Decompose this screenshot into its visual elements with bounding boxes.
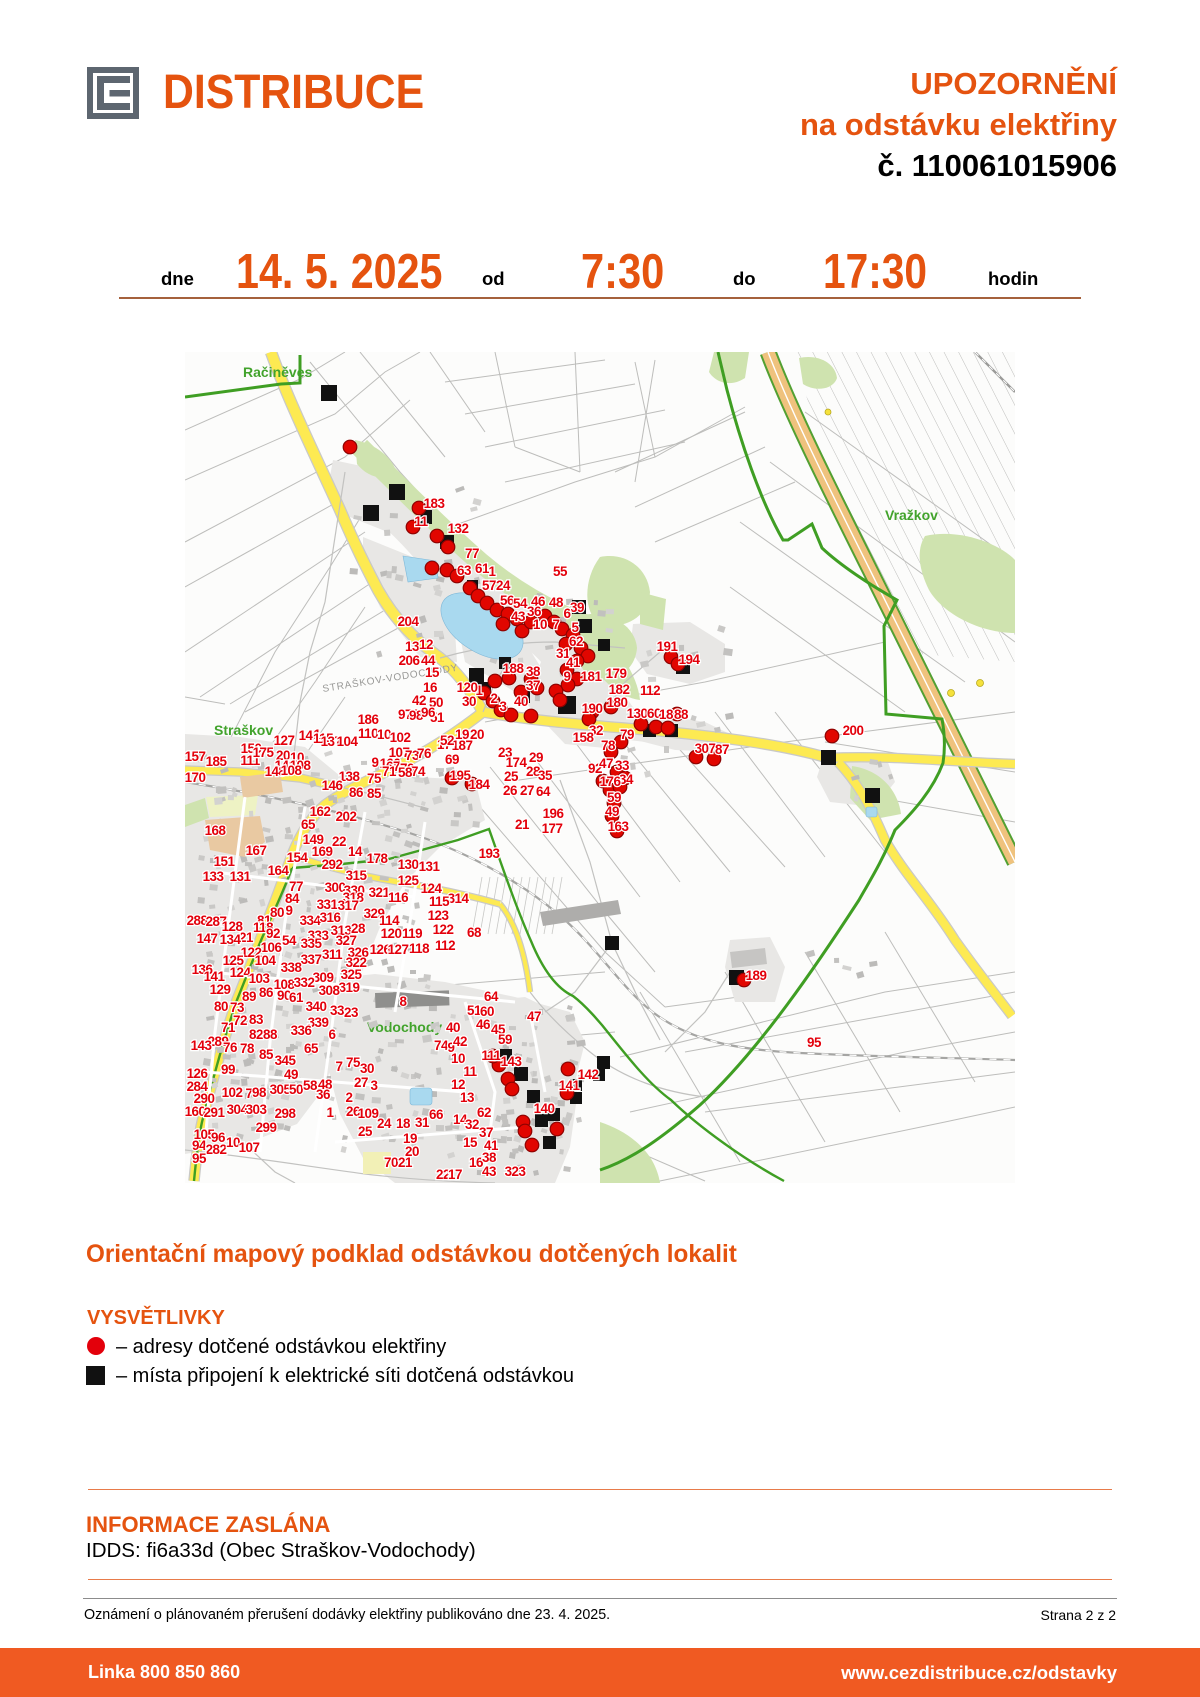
svg-text:337: 337 [301,952,322,967]
svg-text:59: 59 [498,1032,512,1047]
svg-text:13: 13 [405,639,419,654]
svg-text:40: 40 [514,694,528,709]
svg-text:Račiněves: Račiněves [243,364,312,380]
svg-text:303: 303 [246,1102,267,1117]
svg-text:89: 89 [242,989,256,1004]
svg-text:170: 170 [185,770,205,785]
svg-text:75: 75 [367,771,382,786]
svg-text:98: 98 [252,1085,267,1100]
svg-text:62: 62 [477,1105,491,1120]
svg-text:30: 30 [360,1061,374,1076]
svg-text:119: 119 [402,926,422,941]
svg-text:19: 19 [455,727,469,742]
svg-text:2: 2 [491,691,498,706]
svg-text:3: 3 [500,699,507,714]
svg-text:7: 7 [336,1059,343,1074]
svg-text:141: 141 [559,1078,581,1093]
svg-text:11: 11 [463,1064,477,1079]
svg-text:200: 200 [843,723,864,738]
svg-text:158: 158 [573,730,595,745]
svg-text:332: 332 [294,975,315,990]
svg-text:57: 57 [482,578,496,593]
svg-text:194: 194 [679,652,701,667]
svg-text:10: 10 [533,617,547,632]
svg-text:193: 193 [479,846,500,861]
svg-text:77: 77 [465,546,479,561]
svg-text:340: 340 [306,999,327,1014]
svg-text:116: 116 [388,890,408,905]
svg-text:336: 336 [291,1023,312,1038]
svg-text:143: 143 [191,1038,212,1053]
svg-text:181: 181 [581,669,603,684]
svg-text:118: 118 [409,941,430,956]
svg-text:95: 95 [807,1035,822,1050]
svg-text:21: 21 [515,817,530,832]
svg-text:65: 65 [304,1041,319,1056]
svg-text:160: 160 [185,1104,205,1119]
svg-text:14: 14 [348,844,363,859]
svg-text:123: 123 [428,908,449,923]
svg-text:12: 12 [451,1077,465,1092]
svg-text:43: 43 [482,1164,496,1179]
svg-text:87: 87 [715,742,729,757]
svg-text:184: 184 [469,777,491,792]
svg-text:319: 319 [339,980,360,995]
svg-text:25: 25 [358,1124,373,1139]
svg-text:147: 147 [197,931,218,946]
svg-text:24: 24 [377,1116,392,1131]
svg-text:185: 185 [206,754,228,769]
svg-text:61: 61 [289,990,304,1005]
svg-text:292: 292 [322,857,343,872]
svg-text:43: 43 [511,609,525,624]
svg-text:125: 125 [398,873,420,888]
svg-text:Vražkov: Vražkov [885,507,938,523]
svg-text:47: 47 [527,1009,541,1024]
svg-text:111: 111 [481,1048,501,1063]
svg-text:78: 78 [240,1041,255,1056]
svg-text:11: 11 [414,514,428,529]
svg-text:180: 180 [607,695,628,710]
svg-text:76: 76 [223,1040,237,1055]
svg-text:142: 142 [578,1067,599,1082]
svg-text:196: 196 [543,806,564,821]
svg-text:134: 134 [220,932,242,947]
svg-text:63: 63 [457,563,471,578]
svg-text:88: 88 [263,1027,278,1042]
svg-text:49: 49 [284,1067,298,1082]
svg-text:314: 314 [448,891,470,906]
svg-text:1: 1 [327,1105,335,1120]
svg-text:179: 179 [606,666,627,681]
svg-text:13: 13 [460,1090,474,1105]
svg-text:37: 37 [526,678,540,693]
svg-text:60: 60 [480,1004,494,1019]
svg-text:85: 85 [367,786,382,801]
svg-text:33: 33 [615,758,629,773]
svg-text:6: 6 [329,1027,336,1042]
svg-text:23: 23 [344,1005,358,1020]
svg-text:12: 12 [419,637,433,652]
svg-text:127: 127 [274,733,295,748]
svg-text:92: 92 [266,926,280,941]
svg-text:56: 56 [500,593,514,608]
svg-text:52: 52 [440,733,454,748]
svg-text:282: 282 [206,1142,227,1157]
svg-text:88: 88 [674,707,689,722]
svg-text:335: 335 [301,936,323,951]
svg-text:178: 178 [367,851,389,866]
svg-text:54: 54 [282,933,297,948]
svg-text:131: 131 [230,869,252,884]
svg-text:25: 25 [504,769,519,784]
svg-text:189: 189 [746,968,767,983]
svg-text:104: 104 [337,734,359,749]
svg-text:22: 22 [332,834,346,849]
svg-text:308: 308 [319,983,341,998]
svg-text:Straškov: Straškov [214,722,273,738]
svg-text:17: 17 [448,1167,462,1182]
svg-text:15: 15 [463,1135,478,1150]
svg-text:163: 163 [608,819,629,834]
svg-text:102: 102 [222,1085,243,1100]
svg-text:55: 55 [553,564,568,579]
svg-text:323: 323 [505,1164,526,1179]
svg-text:122: 122 [433,922,454,937]
svg-text:176: 176 [600,774,621,789]
svg-text:72: 72 [233,1013,247,1028]
svg-text:317: 317 [338,898,359,913]
svg-text:8: 8 [400,994,408,1009]
svg-text:66: 66 [429,1107,443,1122]
svg-text:40: 40 [446,1020,460,1035]
svg-text:80: 80 [270,905,284,920]
svg-text:108: 108 [281,763,303,778]
svg-text:115: 115 [429,894,450,909]
svg-text:85: 85 [259,1047,274,1062]
svg-text:31: 31 [415,1115,430,1130]
svg-text:30: 30 [462,694,476,709]
svg-text:62: 62 [569,634,583,649]
svg-text:99: 99 [221,1062,235,1077]
svg-text:9: 9 [286,903,293,918]
svg-text:154: 154 [287,850,309,865]
svg-text:64: 64 [484,989,499,1004]
svg-text:140: 140 [534,1101,555,1116]
svg-text:59: 59 [607,790,621,805]
svg-text:20: 20 [470,727,484,742]
svg-text:131: 131 [419,859,441,874]
svg-text:27: 27 [520,783,534,798]
svg-text:143: 143 [501,1054,522,1069]
svg-text:129: 129 [210,982,231,997]
svg-text:112: 112 [435,938,455,953]
svg-text:133: 133 [203,869,224,884]
svg-text:7: 7 [553,617,560,632]
svg-text:102: 102 [390,730,411,745]
svg-text:48: 48 [549,595,564,610]
svg-text:120: 120 [457,680,478,695]
svg-text:36: 36 [316,1087,330,1102]
svg-text:26: 26 [503,783,517,798]
svg-text:9: 9 [372,755,379,770]
svg-text:21: 21 [239,930,254,945]
svg-text:174: 174 [506,755,528,770]
svg-text:175: 175 [253,745,275,760]
svg-text:291: 291 [204,1105,226,1120]
svg-text:186: 186 [358,712,379,727]
svg-text:47: 47 [599,756,613,771]
svg-text:65: 65 [301,817,316,832]
svg-text:151: 151 [214,854,236,869]
svg-text:107: 107 [239,1140,260,1155]
svg-text:18: 18 [396,1116,411,1131]
svg-text:58: 58 [398,765,413,780]
svg-text:78: 78 [601,738,616,753]
svg-text:164: 164 [268,863,290,878]
svg-text:71: 71 [221,1020,236,1035]
svg-text:15: 15 [425,665,440,680]
svg-text:1: 1 [489,564,497,579]
svg-text:109: 109 [358,1106,379,1121]
svg-text:75: 75 [346,1055,361,1070]
svg-text:74: 74 [411,764,426,779]
svg-text:35: 35 [538,768,553,783]
svg-text:68: 68 [467,925,482,940]
svg-text:86: 86 [259,985,273,1000]
svg-text:130: 130 [398,857,419,872]
svg-text:38: 38 [482,1150,497,1165]
svg-text:110: 110 [358,726,378,741]
svg-text:82: 82 [249,1027,263,1042]
svg-text:95: 95 [192,1151,207,1166]
svg-text:69: 69 [445,752,459,767]
svg-text:5: 5 [572,620,580,635]
svg-text:157: 157 [185,749,205,764]
svg-text:307: 307 [695,741,716,756]
svg-text:146: 146 [322,778,343,793]
svg-text:41: 41 [566,655,581,670]
svg-text:24: 24 [496,578,511,593]
svg-text:83: 83 [249,1012,263,1027]
svg-text:39: 39 [570,600,584,615]
svg-text:104: 104 [255,953,277,968]
svg-text:132: 132 [448,521,469,536]
svg-text:27: 27 [354,1075,368,1090]
svg-text:18: 18 [659,707,674,722]
svg-text:71: 71 [382,764,397,779]
svg-text:188: 188 [503,661,525,676]
svg-text:315: 315 [346,868,368,883]
svg-text:46: 46 [476,1017,490,1032]
svg-text:76: 76 [417,746,431,761]
svg-text:3: 3 [371,1078,378,1093]
svg-text:70: 70 [384,1155,398,1170]
svg-text:29: 29 [529,750,543,765]
svg-text:345: 345 [275,1053,297,1068]
svg-text:299: 299 [256,1120,277,1135]
svg-text:42: 42 [453,1034,467,1049]
svg-text:6: 6 [564,606,571,621]
svg-text:177: 177 [542,821,563,836]
svg-text:112: 112 [640,683,660,698]
svg-text:298: 298 [275,1106,297,1121]
svg-text:49: 49 [605,804,619,819]
svg-text:206: 206 [399,653,420,668]
svg-text:191: 191 [657,639,679,654]
svg-text:34: 34 [619,772,634,787]
svg-text:80: 80 [214,999,228,1014]
svg-text:79: 79 [620,727,634,742]
svg-text:9: 9 [564,669,571,684]
svg-text:86: 86 [349,785,363,800]
svg-text:33: 33 [330,1003,344,1018]
svg-text:50: 50 [289,1082,303,1097]
svg-text:96: 96 [421,705,435,720]
svg-text:183: 183 [424,496,445,511]
svg-text:334: 334 [300,913,322,928]
svg-text:202: 202 [336,809,357,824]
svg-text:338: 338 [281,960,303,975]
svg-text:311: 311 [322,947,343,962]
svg-text:16: 16 [469,1155,483,1170]
svg-text:21: 21 [398,1155,413,1170]
svg-text:168: 168 [205,823,227,838]
svg-text:204: 204 [398,614,420,629]
svg-text:127: 127 [388,942,409,957]
svg-text:120: 120 [381,926,402,941]
svg-text:2: 2 [346,1090,353,1105]
svg-text:103: 103 [249,971,270,986]
svg-text:190: 190 [582,701,603,716]
svg-text:38: 38 [526,664,541,679]
svg-text:130: 130 [627,706,648,721]
svg-text:167: 167 [246,843,267,858]
svg-text:64: 64 [536,784,551,799]
